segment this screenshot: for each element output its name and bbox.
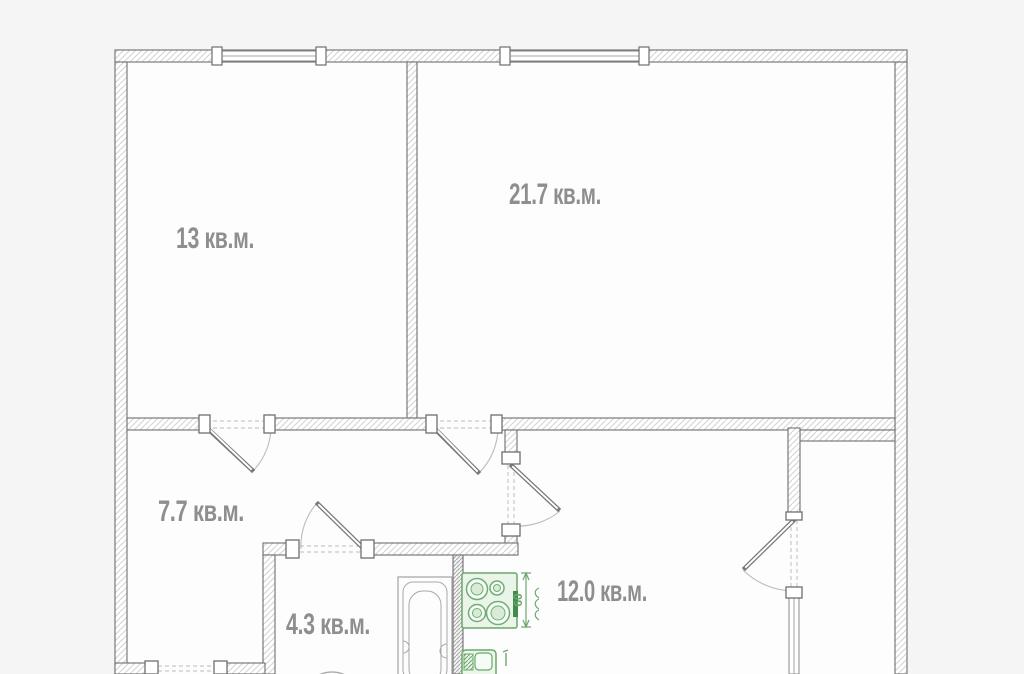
- wall-balcony-top: [800, 430, 895, 441]
- wall-bottom-b: [227, 663, 265, 674]
- room-21-label: 21.7 кв.м.: [509, 178, 601, 211]
- wall-right: [895, 62, 907, 674]
- wall-kitchen-vert-a: [505, 430, 517, 455]
- wall-left: [115, 62, 127, 674]
- kitchen-label: 12.0 кв.м.: [557, 575, 647, 608]
- wall-kitchen-right: [788, 428, 800, 518]
- balcony-window: [789, 598, 799, 674]
- wall-bath-top-b: [372, 543, 518, 555]
- hallway-label: 7.7 кв.м.: [158, 495, 244, 528]
- room-13-label: 13 кв.м.: [176, 222, 254, 255]
- wall-bath-left: [263, 555, 275, 674]
- floor-plan: 60 13 кв.м. 21.7 кв.м. 7.7 кв.м. 4.3 кв.…: [0, 0, 1024, 674]
- wall-mid-b: [270, 418, 432, 430]
- wall-mid-a: [127, 418, 205, 430]
- wall-mid-c: [497, 418, 895, 430]
- wall-bottom-a: [115, 663, 146, 674]
- stove: [462, 573, 518, 628]
- floor-plan-svg: 60 13 кв.м. 21.7 кв.м. 7.7 кв.м. 4.3 кв.…: [0, 0, 1024, 674]
- bathtub: [398, 577, 452, 674]
- wall-room-divider: [407, 62, 417, 418]
- bathroom-label: 4.3 кв.м.: [286, 608, 370, 641]
- wall-bath-top-a: [263, 543, 289, 555]
- stove-dimension-label: 60: [511, 593, 525, 607]
